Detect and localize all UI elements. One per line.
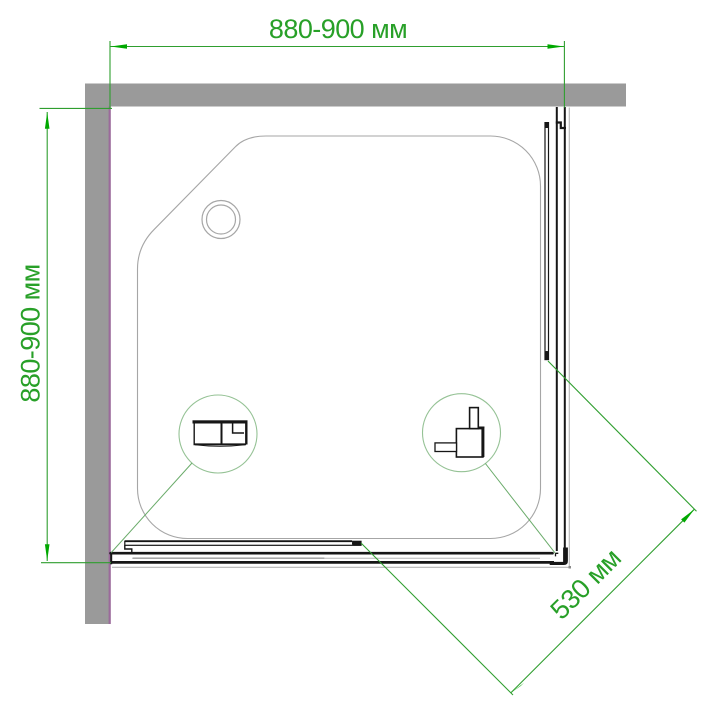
svg-text:880-900 мм: 880-900 мм [269, 14, 407, 44]
svg-text:880-900 мм: 880-900 мм [16, 264, 46, 402]
svg-text:530 мм: 530 мм [544, 543, 626, 625]
